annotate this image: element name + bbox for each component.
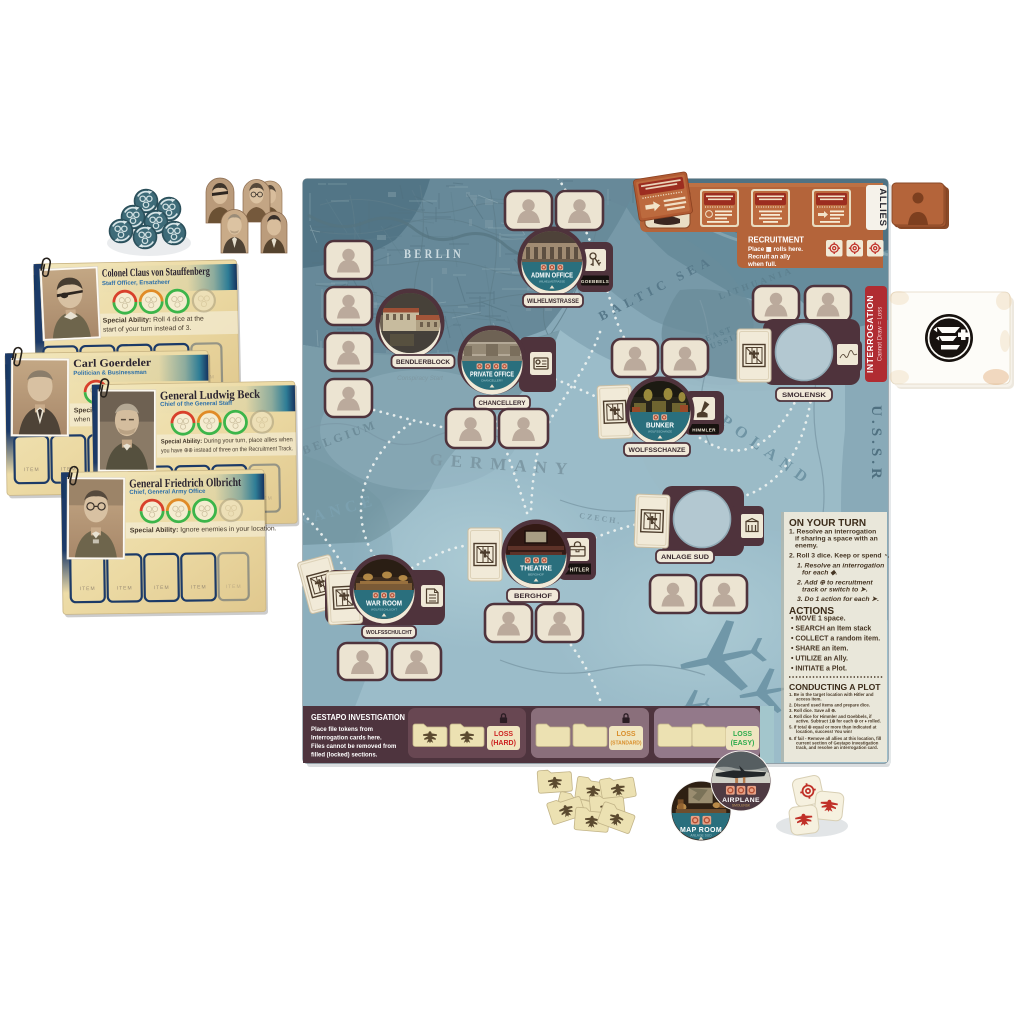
svg-text:• INITIATE a Plot.: • INITIATE a Plot.: [791, 666, 847, 673]
svg-text:access item.: access item.: [796, 697, 822, 702]
svg-text:when full.: when full.: [747, 261, 777, 268]
svg-text:3. Do 1 action for each ➤.: 3. Do 1 action for each ➤.: [797, 596, 879, 603]
svg-text:WILHELMSTRASSE: WILHELMSTRASSE: [539, 280, 565, 284]
svg-text:LOSS: LOSS: [494, 731, 513, 738]
svg-text:• SHARE an item.: • SHARE an item.: [791, 646, 848, 653]
svg-text:WOLFSSCHANZE: WOLFSSCHANZE: [629, 447, 687, 454]
svg-text:• UTILIZE an Ally.: • UTILIZE an Ally.: [791, 656, 848, 663]
svg-text:• COLLECT a random item.: • COLLECT a random item.: [791, 636, 880, 643]
svg-text:if sharing a space with an: if sharing a space with an: [795, 536, 878, 543]
svg-text:GOEBBELS: GOEBBELS: [581, 279, 609, 284]
svg-text:CONDUCTING A PLOT: CONDUCTING A PLOT: [789, 682, 881, 692]
svg-text:Cannot Draw = Loss: Cannot Draw = Loss: [878, 307, 884, 362]
svg-text:WAR ROOM: WAR ROOM: [366, 601, 402, 608]
svg-text:(STANDARD): (STANDARD): [611, 741, 642, 747]
svg-text:CHANCELLERY: CHANCELLERY: [481, 379, 503, 383]
svg-text:active. Subtract 1⊕ for each ⊕: active. Subtract 1⊕ for each ⊕ or ♦ roll…: [796, 719, 881, 724]
svg-text:LOSS: LOSS: [616, 731, 635, 738]
svg-text:Place ▦ rolls here.: Place ▦ rolls here.: [748, 246, 803, 253]
svg-text:• SEARCH an Item stack: • SEARCH an Item stack: [791, 626, 871, 633]
svg-text:ITEM: ITEM: [154, 585, 170, 591]
svg-text:Recruit an ally: Recruit an ally: [748, 254, 791, 261]
svg-text:enemy.: enemy.: [795, 543, 818, 550]
svg-text:Politician & Businessman: Politician & Businessman: [73, 370, 147, 377]
svg-text:BENDLERBLOCK: BENDLERBLOCK: [396, 359, 450, 366]
svg-text:THEATRE: THEATRE: [520, 566, 552, 573]
svg-text:ON YOUR TURN: ON YOUR TURN: [789, 518, 866, 529]
svg-text:BERGHOF: BERGHOF: [514, 593, 552, 600]
svg-text:Interrogation cards here.: Interrogation cards here.: [311, 736, 382, 742]
svg-text:ITEM: ITEM: [80, 586, 96, 592]
svg-text:1. Resolve an interrogation: 1. Resolve an interrogation: [789, 529, 876, 536]
svg-text:Conspiracy Start: Conspiracy Start: [397, 375, 443, 382]
svg-text:BUNKER: BUNKER: [646, 423, 674, 430]
svg-text:BERGHOF: BERGHOF: [528, 573, 544, 577]
svg-text:Carl Goerdeler: Carl Goerdeler: [73, 357, 151, 370]
svg-text:SMOLENSK: SMOLENSK: [732, 804, 751, 808]
svg-text:PRIVATE OFFICE: PRIVATE OFFICE: [470, 372, 514, 379]
svg-text:for each ◆.: for each ◆.: [802, 570, 838, 577]
svg-text:CHANCELLERY: CHANCELLERY: [479, 400, 527, 407]
svg-text:2. Discard used items and pre: 2. Discard used items and prepare dice.: [789, 702, 870, 707]
svg-text:SMOLENSK: SMOLENSK: [782, 392, 826, 399]
svg-text:ITEM: ITEM: [117, 585, 133, 591]
svg-text:2. Add ⊕ to recruitment: 2. Add ⊕ to recruitment: [796, 580, 873, 587]
svg-text:Files cannot be removed from: Files cannot be removed from: [311, 744, 396, 750]
svg-text:ADMIN OFFICE: ADMIN OFFICE: [531, 273, 573, 280]
svg-text:filled (locked) sections.: filled (locked) sections.: [311, 753, 378, 759]
svg-text:HIMMLER: HIMMLER: [692, 428, 716, 433]
svg-text:Place file tokens from: Place file tokens from: [311, 727, 373, 733]
svg-text:ANLAGE SUD: ANLAGE SUD: [690, 834, 712, 838]
svg-text:U.S.S.R: U.S.S.R: [868, 405, 884, 483]
svg-text:Colonel Claus von Stauffenberg: Colonel Claus von Stauffenberg: [102, 265, 211, 279]
svg-text:3. Roll dice. Save all ⊕.: 3. Roll dice. Save all ⊕.: [789, 708, 836, 713]
svg-text:WOLFSSCHLUCHT: WOLFSSCHLUCHT: [371, 608, 397, 612]
svg-text:location, success! You win!: location, success! You win!: [796, 729, 853, 734]
svg-text:Chief of the General Staff: Chief of the General Staff: [160, 401, 233, 408]
svg-text:track or switch to ➤.: track or switch to ➤.: [802, 587, 868, 594]
svg-text:2. Roll 3 dice. Keep or spend: 2. Roll 3 dice. Keep or spend ◔.: [789, 553, 890, 560]
svg-text:ALLIES: ALLIES: [877, 188, 888, 227]
svg-text:ITEM: ITEM: [24, 467, 40, 473]
svg-text:• MOVE 1 space.: • MOVE 1 space.: [791, 616, 846, 623]
svg-text:1. Resolve an interrogation: 1. Resolve an interrogation: [797, 563, 884, 570]
svg-text:ANLAGE SUD: ANLAGE SUD: [661, 554, 709, 561]
svg-text:General Ludwig Beck: General Ludwig Beck: [160, 387, 261, 403]
svg-text:ITEM: ITEM: [191, 584, 207, 590]
svg-text:WILHELMSTRASSE: WILHELMSTRASSE: [527, 299, 579, 305]
svg-text:Chief, General Army Office: Chief, General Army Office: [129, 489, 206, 496]
svg-text:LOSS: LOSS: [733, 731, 752, 738]
svg-text:GESTAPO INVESTIGATION: GESTAPO INVESTIGATION: [311, 712, 405, 722]
svg-text:(HARD): (HARD): [491, 740, 516, 747]
svg-text:HITLER: HITLER: [570, 567, 590, 573]
svg-text:INTERROGATION: INTERROGATION: [865, 295, 875, 373]
svg-text:General Friedrich Olbricht: General Friedrich Olbricht: [129, 475, 241, 491]
svg-text:WOLFSSCHANZE: WOLFSSCHANZE: [648, 430, 672, 434]
svg-text:BERLIN: BERLIN: [404, 246, 464, 261]
svg-text:WOLFSSCHULCHT: WOLFSSCHULCHT: [366, 630, 412, 636]
svg-text:(EASY): (EASY): [731, 740, 755, 747]
svg-text:ITEM: ITEM: [226, 584, 242, 590]
svg-text:RECRUITMENT: RECRUITMENT: [748, 235, 805, 245]
svg-text:track, and resolve an interrog: track, and resolve an interrogation card…: [796, 745, 878, 750]
